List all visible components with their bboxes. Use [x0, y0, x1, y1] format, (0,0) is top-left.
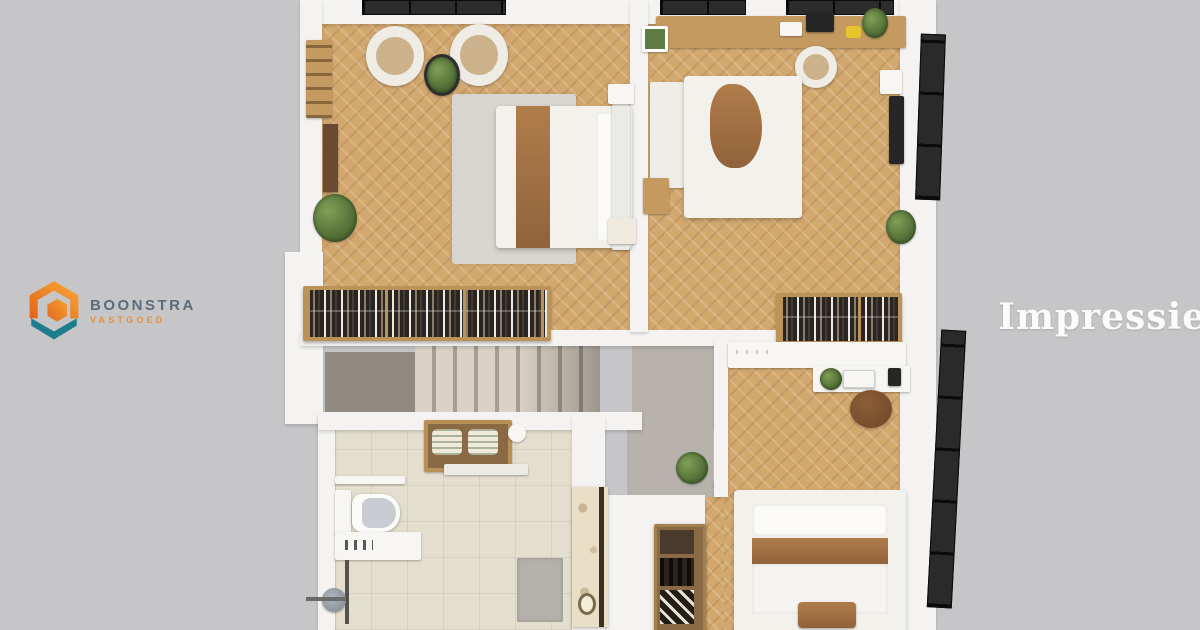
floor-landing-upper: [632, 346, 722, 430]
shelf-shoes: [660, 590, 694, 624]
bed-pillows-bottom-right: [752, 504, 888, 536]
wardrobe-bedroom-top-left: [303, 286, 551, 341]
shower-rail: [345, 560, 349, 624]
bed-band-bottom-right: [752, 538, 888, 564]
boonstra-logo: BOONSTRA VASTGOED: [28, 281, 196, 341]
wall-hall-study: [714, 340, 728, 497]
headboard-top-right: [650, 82, 684, 188]
shelf-unit-bottom-right: [654, 524, 706, 630]
cabinet-handle: [578, 593, 596, 615]
vanity-counter: [335, 532, 421, 560]
toilet-cistern: [335, 490, 351, 536]
sideboard-study: [728, 342, 906, 368]
grab-bar: [306, 597, 346, 601]
plant-on-ledge: [676, 452, 708, 484]
nightstand-top-left: [608, 84, 634, 104]
toilet-bowl: [352, 494, 400, 532]
shelf-drawer: [660, 530, 694, 554]
hexagon-house-logo-icon: [28, 281, 80, 341]
rolled-towel-1: [432, 429, 462, 455]
shelf-above-toilet: [335, 476, 405, 484]
wall-tv: [889, 96, 904, 164]
bathroom-vent: [444, 464, 528, 475]
yellow-desk-object: [846, 26, 861, 38]
laptop-on-desk: [806, 12, 834, 32]
render-canvas: BOONSTRA VASTGOED Impressie: [0, 0, 1200, 630]
toilet-seat: [362, 498, 396, 528]
patterned-cabinet: [572, 487, 608, 627]
bench-bottom-right: [798, 602, 856, 628]
logo-text: BOONSTRA VASTGOED: [90, 298, 196, 325]
papers-on-desk: [780, 22, 802, 36]
desk-plant-study: [820, 368, 842, 390]
dark-object-study-desk: [888, 368, 901, 386]
laptop-study: [843, 370, 875, 388]
side-table-top-right: [643, 178, 669, 214]
window-right-1: [915, 34, 946, 201]
wardrobe-study: [776, 293, 902, 345]
logo-company-name: BOONSTRA: [90, 298, 196, 313]
door-bedroom-top-left: [323, 124, 338, 192]
plant-large-left: [313, 194, 357, 242]
bed-top-right: [684, 76, 802, 218]
green-wall-frame: [642, 26, 668, 52]
vanity-faucet: [345, 540, 373, 550]
bench-top-left: [608, 218, 636, 244]
window-top-2: [660, 0, 746, 15]
ladder-rack: [306, 40, 332, 118]
lounge-chair-1: [366, 26, 424, 86]
staircase: [415, 338, 600, 415]
toilet-roll-holder: [508, 424, 526, 442]
shelf-bottles: [660, 558, 694, 586]
shower-mat: [517, 558, 563, 622]
stairwell-dark-landing: [325, 352, 415, 414]
bed-throw-top-right: [710, 84, 762, 168]
window-top-1: [362, 0, 506, 15]
potted-plant-between-chairs: [424, 54, 460, 96]
impressie-watermark: Impressie: [998, 296, 1200, 338]
rolled-towel-2: [468, 429, 498, 455]
desk-plant-top-right: [862, 8, 888, 38]
logo-division-name: VASTGOED: [90, 316, 196, 325]
stool-study: [850, 390, 892, 428]
cabinet-slit: [599, 487, 604, 627]
floor-plant-top-right: [886, 210, 916, 244]
bed-throw-top-left: [516, 106, 550, 248]
wall-shelf-right: [880, 70, 902, 94]
